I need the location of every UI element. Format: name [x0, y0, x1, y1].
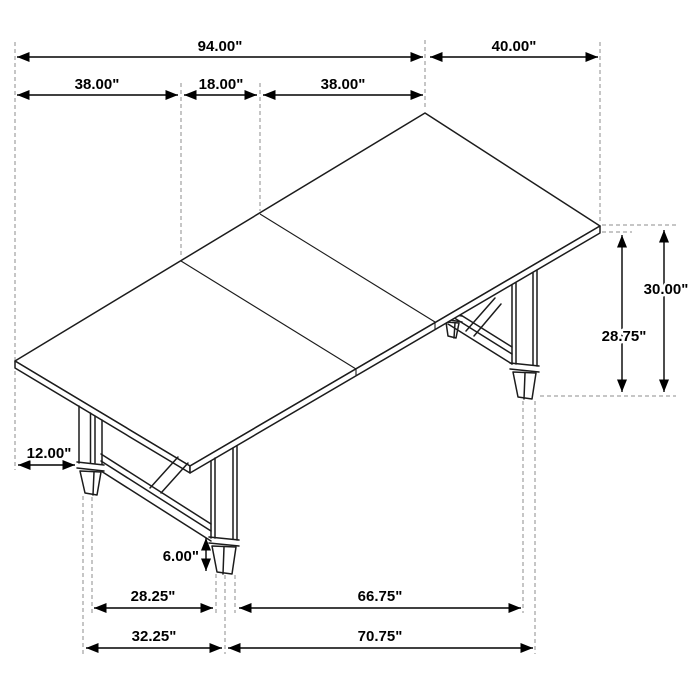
- dimension-top-width-label: 40.00": [492, 38, 537, 55]
- dimension-leg-inset-label: 12.00": [27, 445, 72, 462]
- dimension-outer-span-left-label: 32.25": [132, 628, 177, 645]
- dimension-underside-height-label: 28.75": [602, 328, 647, 345]
- dimension-total-length: 94.00": [17, 38, 423, 57]
- dimension-outer-span-left: 32.25": [86, 628, 222, 648]
- dimension-overall-height-label: 30.00": [644, 281, 689, 298]
- dimension-outer-span-right: 70.75": [228, 628, 533, 648]
- dimension-inner-span-right-label: 66.75": [358, 588, 403, 605]
- dimension-foot-height: 6.00": [163, 538, 206, 571]
- dimension-leg-inset: 12.00": [18, 445, 75, 465]
- dimension-overall-height: 30.00": [644, 230, 689, 392]
- dimension-leaf-section-label: 18.00": [199, 76, 244, 93]
- dimension-left-section-label: 38.00": [75, 76, 120, 93]
- dimension-right-section-label: 38.00": [321, 76, 366, 93]
- dimension-inner-span-left-label: 28.25": [131, 588, 176, 605]
- dimension-foot-height-label: 6.00": [163, 548, 199, 565]
- dimension-right-section: 38.00": [263, 76, 423, 95]
- front-right-leg: [510, 270, 539, 399]
- table-dimension-drawing: 94.00" 40.00" 38.00" 18.00" 38.00" 30.00…: [0, 0, 700, 700]
- technical-drawing-canvas: 94.00" 40.00" 38.00" 18.00" 38.00" 30.00…: [0, 0, 700, 700]
- dimension-underside-height: 28.75": [602, 235, 647, 392]
- dimension-total-length-label: 94.00": [198, 38, 243, 55]
- dimension-left-section: 38.00": [17, 76, 178, 95]
- dimension-outer-span-right-label: 70.75": [358, 628, 403, 645]
- dimension-inner-span-left: 28.25": [94, 588, 213, 608]
- front-left-leg: [209, 446, 239, 574]
- dimension-top-width: 40.00": [430, 38, 598, 57]
- dimension-leaf-section: 18.00": [184, 76, 257, 95]
- dimension-inner-span-right: 66.75": [239, 588, 521, 608]
